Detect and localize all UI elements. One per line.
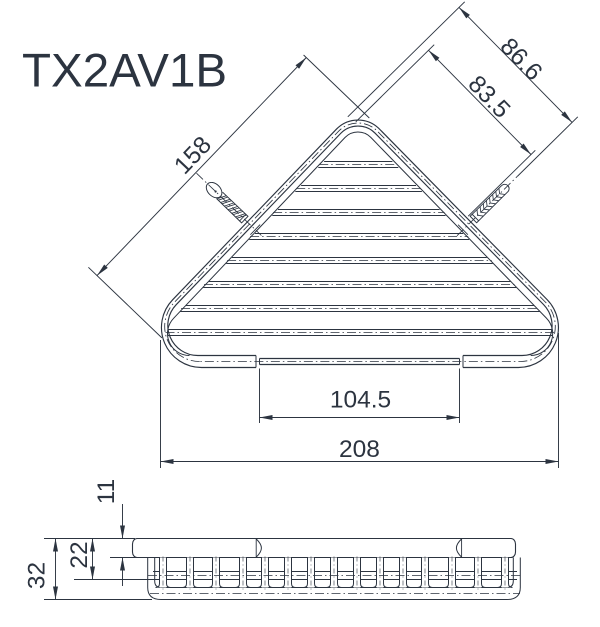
svg-text:22: 22 — [66, 541, 93, 568]
svg-text:11: 11 — [93, 479, 120, 504]
svg-text:104.5: 104.5 — [330, 386, 391, 413]
svg-text:32: 32 — [23, 562, 50, 589]
svg-text:TX2AV1B: TX2AV1B — [22, 45, 227, 98]
svg-text:208: 208 — [339, 436, 380, 463]
